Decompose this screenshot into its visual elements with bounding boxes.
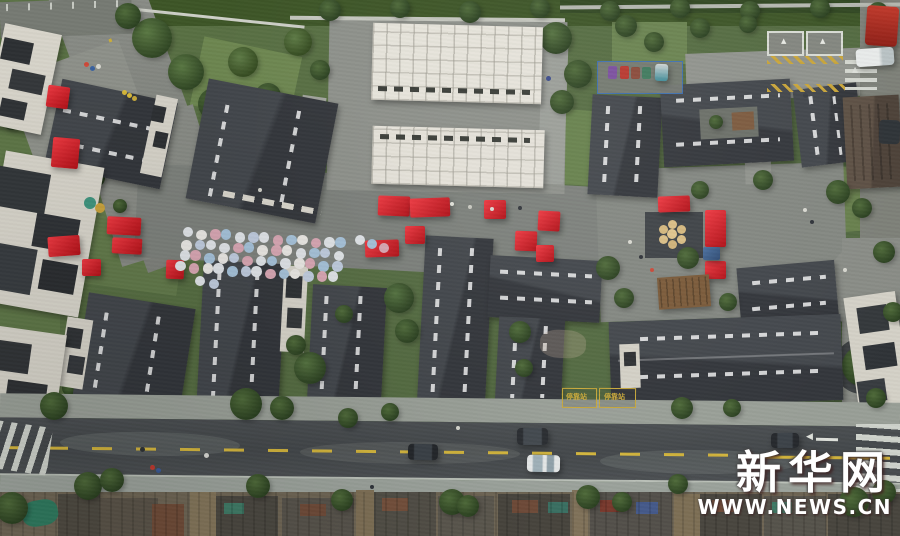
tree: [270, 396, 294, 420]
building-window: [286, 308, 302, 329]
parasol: [219, 243, 230, 254]
building-roof: [587, 94, 662, 198]
tree: [40, 392, 68, 420]
tree: [596, 256, 620, 280]
hatch-yellow: [767, 84, 845, 92]
tree: [338, 408, 358, 428]
tree: [564, 60, 592, 88]
tree: [671, 397, 693, 419]
parasol: [209, 279, 219, 289]
parasol: [235, 232, 246, 243]
tree: [753, 170, 773, 190]
parasol: [241, 266, 252, 277]
car-dark: [879, 120, 900, 145]
person: [96, 64, 101, 69]
parasol: [335, 237, 346, 248]
bean-seat: [667, 229, 677, 239]
person: [810, 220, 814, 224]
tree: [739, 15, 757, 33]
building-window: [0, 166, 51, 214]
tree: [839, 487, 869, 517]
car-white: [527, 455, 560, 473]
parasol: [379, 243, 389, 253]
parasol: [196, 230, 207, 241]
car-dark: [517, 428, 548, 445]
person: [650, 268, 654, 272]
tree: [866, 388, 886, 408]
parasol: [203, 263, 214, 274]
tree: [384, 283, 414, 313]
car-dark: [771, 433, 799, 448]
tree: [284, 28, 312, 56]
tree: [872, 480, 896, 504]
parasol: [190, 250, 201, 261]
red-tent: [51, 137, 81, 169]
person: [468, 205, 472, 209]
person: [370, 485, 374, 489]
person: [803, 93, 808, 98]
red-tent: [405, 226, 425, 244]
person: [456, 426, 460, 430]
red-tent: [82, 259, 101, 276]
person: [84, 62, 89, 67]
building-roof: [609, 314, 844, 408]
truck-red: [865, 5, 900, 47]
tree: [550, 90, 574, 114]
parked-car: [655, 64, 669, 81]
red-tent: [484, 200, 506, 219]
parked-car: [620, 66, 629, 79]
hatch-yellow: [767, 56, 843, 64]
roadside-bay-label: 停靠站: [604, 394, 625, 401]
parasol: [318, 261, 329, 272]
building-window: [285, 276, 302, 299]
cyclist: [204, 453, 209, 458]
bay-arrow: ▲: [820, 38, 825, 45]
parasol: [195, 276, 205, 286]
parasol: [210, 229, 221, 240]
parasol: [181, 240, 192, 251]
tree: [310, 60, 330, 80]
van-white: [855, 47, 894, 68]
bean-seat: [668, 220, 677, 229]
building-window: [65, 327, 84, 349]
parasol: [265, 269, 276, 280]
red-tent: [515, 231, 538, 252]
parasol: [296, 248, 307, 259]
tree: [168, 54, 204, 90]
parasol: [355, 235, 365, 245]
tree: [644, 32, 664, 52]
building-window: [862, 342, 897, 370]
bean-seat: [668, 240, 677, 249]
tree: [228, 47, 258, 77]
tree: [852, 198, 872, 218]
parked-car: [608, 66, 617, 79]
courtyard-deck: [732, 111, 755, 130]
parasol: [280, 258, 291, 269]
tree: [286, 335, 306, 355]
tree: [614, 288, 634, 308]
tree: [883, 302, 900, 322]
tree: [381, 403, 399, 421]
bike: [122, 90, 127, 95]
person: [258, 188, 262, 192]
tree: [690, 18, 710, 38]
roadside-bay-label: 停靠站: [566, 394, 587, 401]
person: [90, 66, 95, 71]
parasol: [305, 258, 316, 269]
road-arrow: ▲: [852, 66, 858, 74]
tree: [331, 489, 353, 511]
building-window: [624, 352, 636, 366]
red-tent: [658, 195, 691, 212]
parasol: [95, 203, 105, 213]
person: [546, 76, 551, 81]
s: [659, 276, 709, 307]
tree: [668, 474, 688, 494]
tree: [459, 1, 481, 23]
building-window: [67, 355, 86, 375]
tree: [395, 319, 419, 343]
tree: [335, 305, 353, 323]
parasol: [233, 243, 244, 254]
parasol: [227, 266, 238, 277]
tree: [719, 293, 737, 311]
red-tent: [378, 195, 411, 216]
tree: [691, 181, 709, 199]
person: [518, 206, 522, 210]
tree: [74, 472, 102, 500]
tree: [723, 399, 741, 417]
building-window: [38, 259, 79, 295]
parasol: [213, 263, 224, 274]
person: [803, 208, 807, 212]
parasol: [242, 256, 253, 267]
red-tent: [537, 210, 560, 231]
parasol: [175, 261, 186, 272]
parasol: [328, 271, 339, 282]
person: [490, 207, 494, 211]
tree: [294, 352, 326, 384]
cyclist: [156, 468, 161, 473]
person: [843, 268, 847, 272]
tree: [615, 15, 637, 37]
bean-seat: [677, 225, 686, 234]
tree: [230, 388, 262, 420]
person: [450, 202, 454, 206]
parasol: [332, 261, 343, 272]
bean-seat: [677, 235, 686, 244]
parked-car: [642, 67, 651, 79]
tree: [113, 199, 127, 213]
parasol: [251, 266, 262, 277]
parasol: [204, 253, 215, 264]
parasol: [303, 271, 314, 282]
bay-arrow: ▲: [781, 38, 786, 45]
car-dark: [408, 444, 438, 461]
red-tent: [47, 235, 80, 257]
red-tent: [107, 216, 142, 236]
aerial-photo: 新华网 WWW.NEWS.CN ▲▲▲◀停靠站停靠站: [0, 0, 900, 536]
tree: [509, 321, 531, 343]
red-tent: [46, 85, 71, 110]
tree: [540, 22, 572, 54]
cyclist: [150, 465, 155, 470]
person: [639, 255, 643, 259]
parasol: [271, 245, 282, 256]
tree: [677, 247, 699, 269]
tree: [576, 485, 600, 509]
parasol: [294, 258, 305, 269]
road-arrow-tail: [816, 438, 838, 441]
cyclist: [140, 447, 145, 452]
parasol: [218, 253, 229, 264]
tree: [246, 474, 270, 498]
blue-tent: [703, 247, 720, 260]
parasol: [248, 232, 259, 243]
tree: [873, 241, 895, 263]
parked-car: [631, 67, 640, 79]
road-arrow-head: ◀: [806, 433, 813, 442]
tree: [100, 468, 124, 492]
building-window: [0, 340, 32, 374]
red-tent: [112, 237, 143, 255]
parasol: [324, 237, 335, 248]
bean-seat: [659, 235, 668, 244]
person: [628, 240, 632, 244]
parasol: [273, 235, 284, 246]
bike: [127, 93, 132, 98]
red-tent: [410, 197, 451, 217]
parasol: [180, 250, 191, 261]
crosswalk-west: [0, 420, 53, 475]
parasol: [297, 235, 308, 246]
roof-mural: [539, 329, 586, 359]
parasol: [259, 232, 270, 243]
building-roof: [416, 235, 493, 416]
tree: [115, 3, 141, 29]
tree: [826, 180, 850, 204]
parasol: [367, 239, 377, 249]
building-roof: [487, 255, 602, 323]
red-tent: [705, 210, 726, 247]
parasol: [282, 245, 293, 256]
tree: [515, 359, 533, 377]
tree: [319, 0, 341, 21]
parasol: [257, 245, 268, 256]
tree: [457, 495, 479, 517]
tree: [612, 492, 632, 512]
tree: [709, 115, 723, 129]
bike: [132, 96, 137, 101]
red-tent: [536, 245, 554, 262]
